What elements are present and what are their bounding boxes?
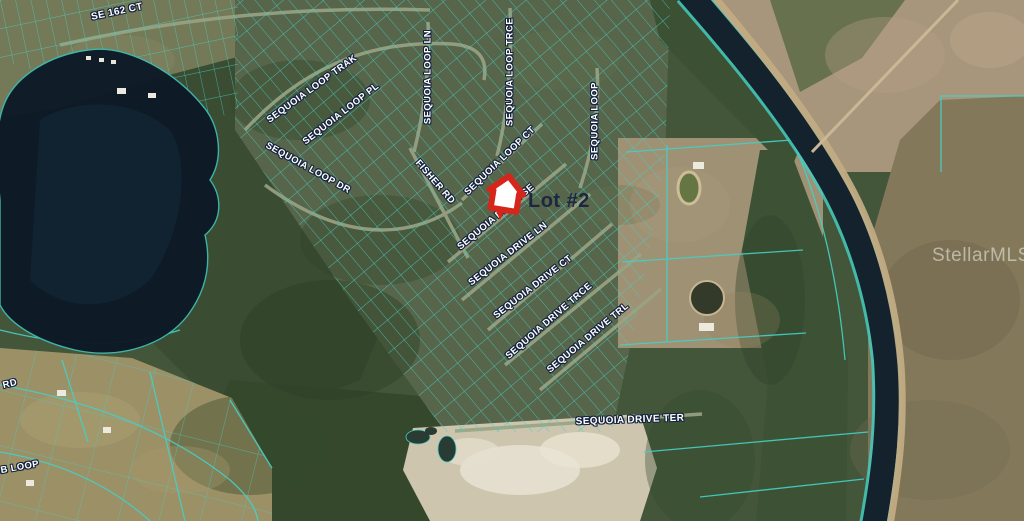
street-label: SEQUOIA LOOP xyxy=(590,82,601,160)
lake xyxy=(0,49,219,353)
map-canvas[interactable]: SE 162 CTSEQUOIA LOOP TRAKSEQUOIA LOOP P… xyxy=(0,0,1024,521)
property-marker[interactable] xyxy=(484,172,528,222)
mls-watermark: StellarMLS xyxy=(932,245,1024,267)
street-label: SEQUOIA LOOP LN xyxy=(423,30,434,124)
red-house-pin-icon xyxy=(484,172,528,222)
lot-callout: Lot #2 xyxy=(528,190,590,213)
street-label: SEQUOIA LOOP TRCE xyxy=(505,18,516,126)
